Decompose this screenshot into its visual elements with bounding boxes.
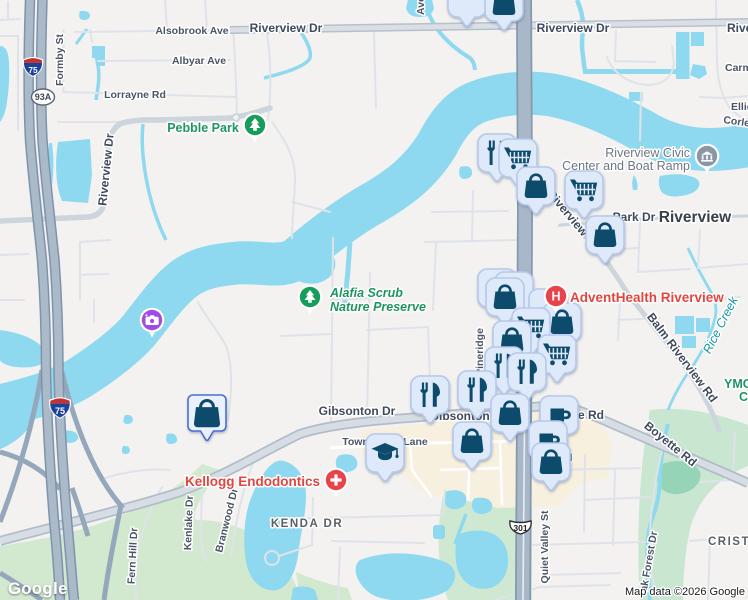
svg-text:Quiet Valley St: Quiet Valley St: [539, 510, 551, 583]
svg-text:Alsobrook Ave: Alsobrook Ave: [155, 25, 228, 37]
svg-text:Ave: Ave: [415, 0, 427, 15]
svg-text:Ca: Ca: [739, 390, 748, 404]
svg-text:YMCA: YMCA: [724, 377, 748, 391]
svg-text:301: 301: [513, 523, 527, 533]
svg-text:Riverview Dr: Riverview Dr: [727, 21, 748, 35]
svg-text:Gibsonton Dr: Gibsonton Dr: [319, 404, 396, 418]
svg-text:Elliot: Elliot: [731, 101, 748, 113]
svg-text:H: H: [551, 289, 560, 303]
svg-text:Map data ©2026 Google: Map data ©2026 Google: [625, 586, 745, 598]
svg-text:93A: 93A: [35, 92, 52, 102]
svg-text:Albyar Ave: Albyar Ave: [172, 55, 226, 67]
svg-text:Riverview Dr: Riverview Dr: [250, 21, 323, 35]
svg-text:Kellogg Endodontics: Kellogg Endodontics: [185, 474, 320, 489]
svg-text:Riverview Civic: Riverview Civic: [605, 146, 690, 160]
svg-text:Riverview: Riverview: [659, 209, 732, 226]
svg-text:Carmel: Carmel: [725, 62, 748, 74]
svg-text:e Rd: e Rd: [578, 408, 604, 422]
svg-text:Kenlake Dr: Kenlake Dr: [182, 495, 196, 550]
svg-text:AdventHealth Riverview: AdventHealth Riverview: [570, 290, 724, 305]
svg-text:Google: Google: [8, 580, 68, 598]
svg-text:Nature Preserve: Nature Preserve: [330, 300, 426, 314]
svg-text:Riverview Dr: Riverview Dr: [537, 21, 610, 35]
svg-text:CRISTINA: CRISTINA: [708, 536, 748, 548]
svg-text:Lorrayne Rd: Lorrayne Rd: [104, 89, 166, 101]
svg-text:Alafia Scrub: Alafia Scrub: [329, 286, 403, 300]
svg-text:Pebble Park: Pebble Park: [167, 121, 239, 135]
svg-text:75: 75: [28, 65, 38, 75]
svg-text:75: 75: [55, 406, 65, 416]
svg-text:Formby St: Formby St: [54, 34, 66, 86]
svg-text:KENDA DR: KENDA DR: [271, 518, 343, 530]
